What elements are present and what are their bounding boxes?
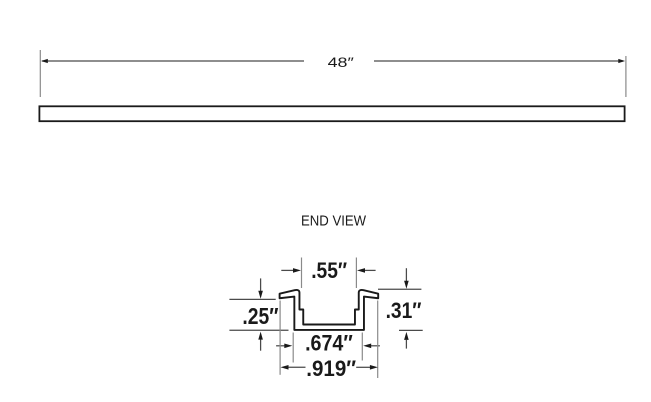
- svg-text:.674″: .674″: [305, 331, 353, 356]
- svg-text:.31″: .31″: [386, 298, 422, 323]
- svg-text:.919″: .919″: [306, 356, 356, 381]
- svg-text:.55″: .55″: [311, 258, 347, 283]
- svg-text:48″: 48″: [328, 54, 354, 70]
- svg-text:END VIEW: END VIEW: [301, 214, 366, 230]
- svg-text:.25″: .25″: [242, 303, 278, 329]
